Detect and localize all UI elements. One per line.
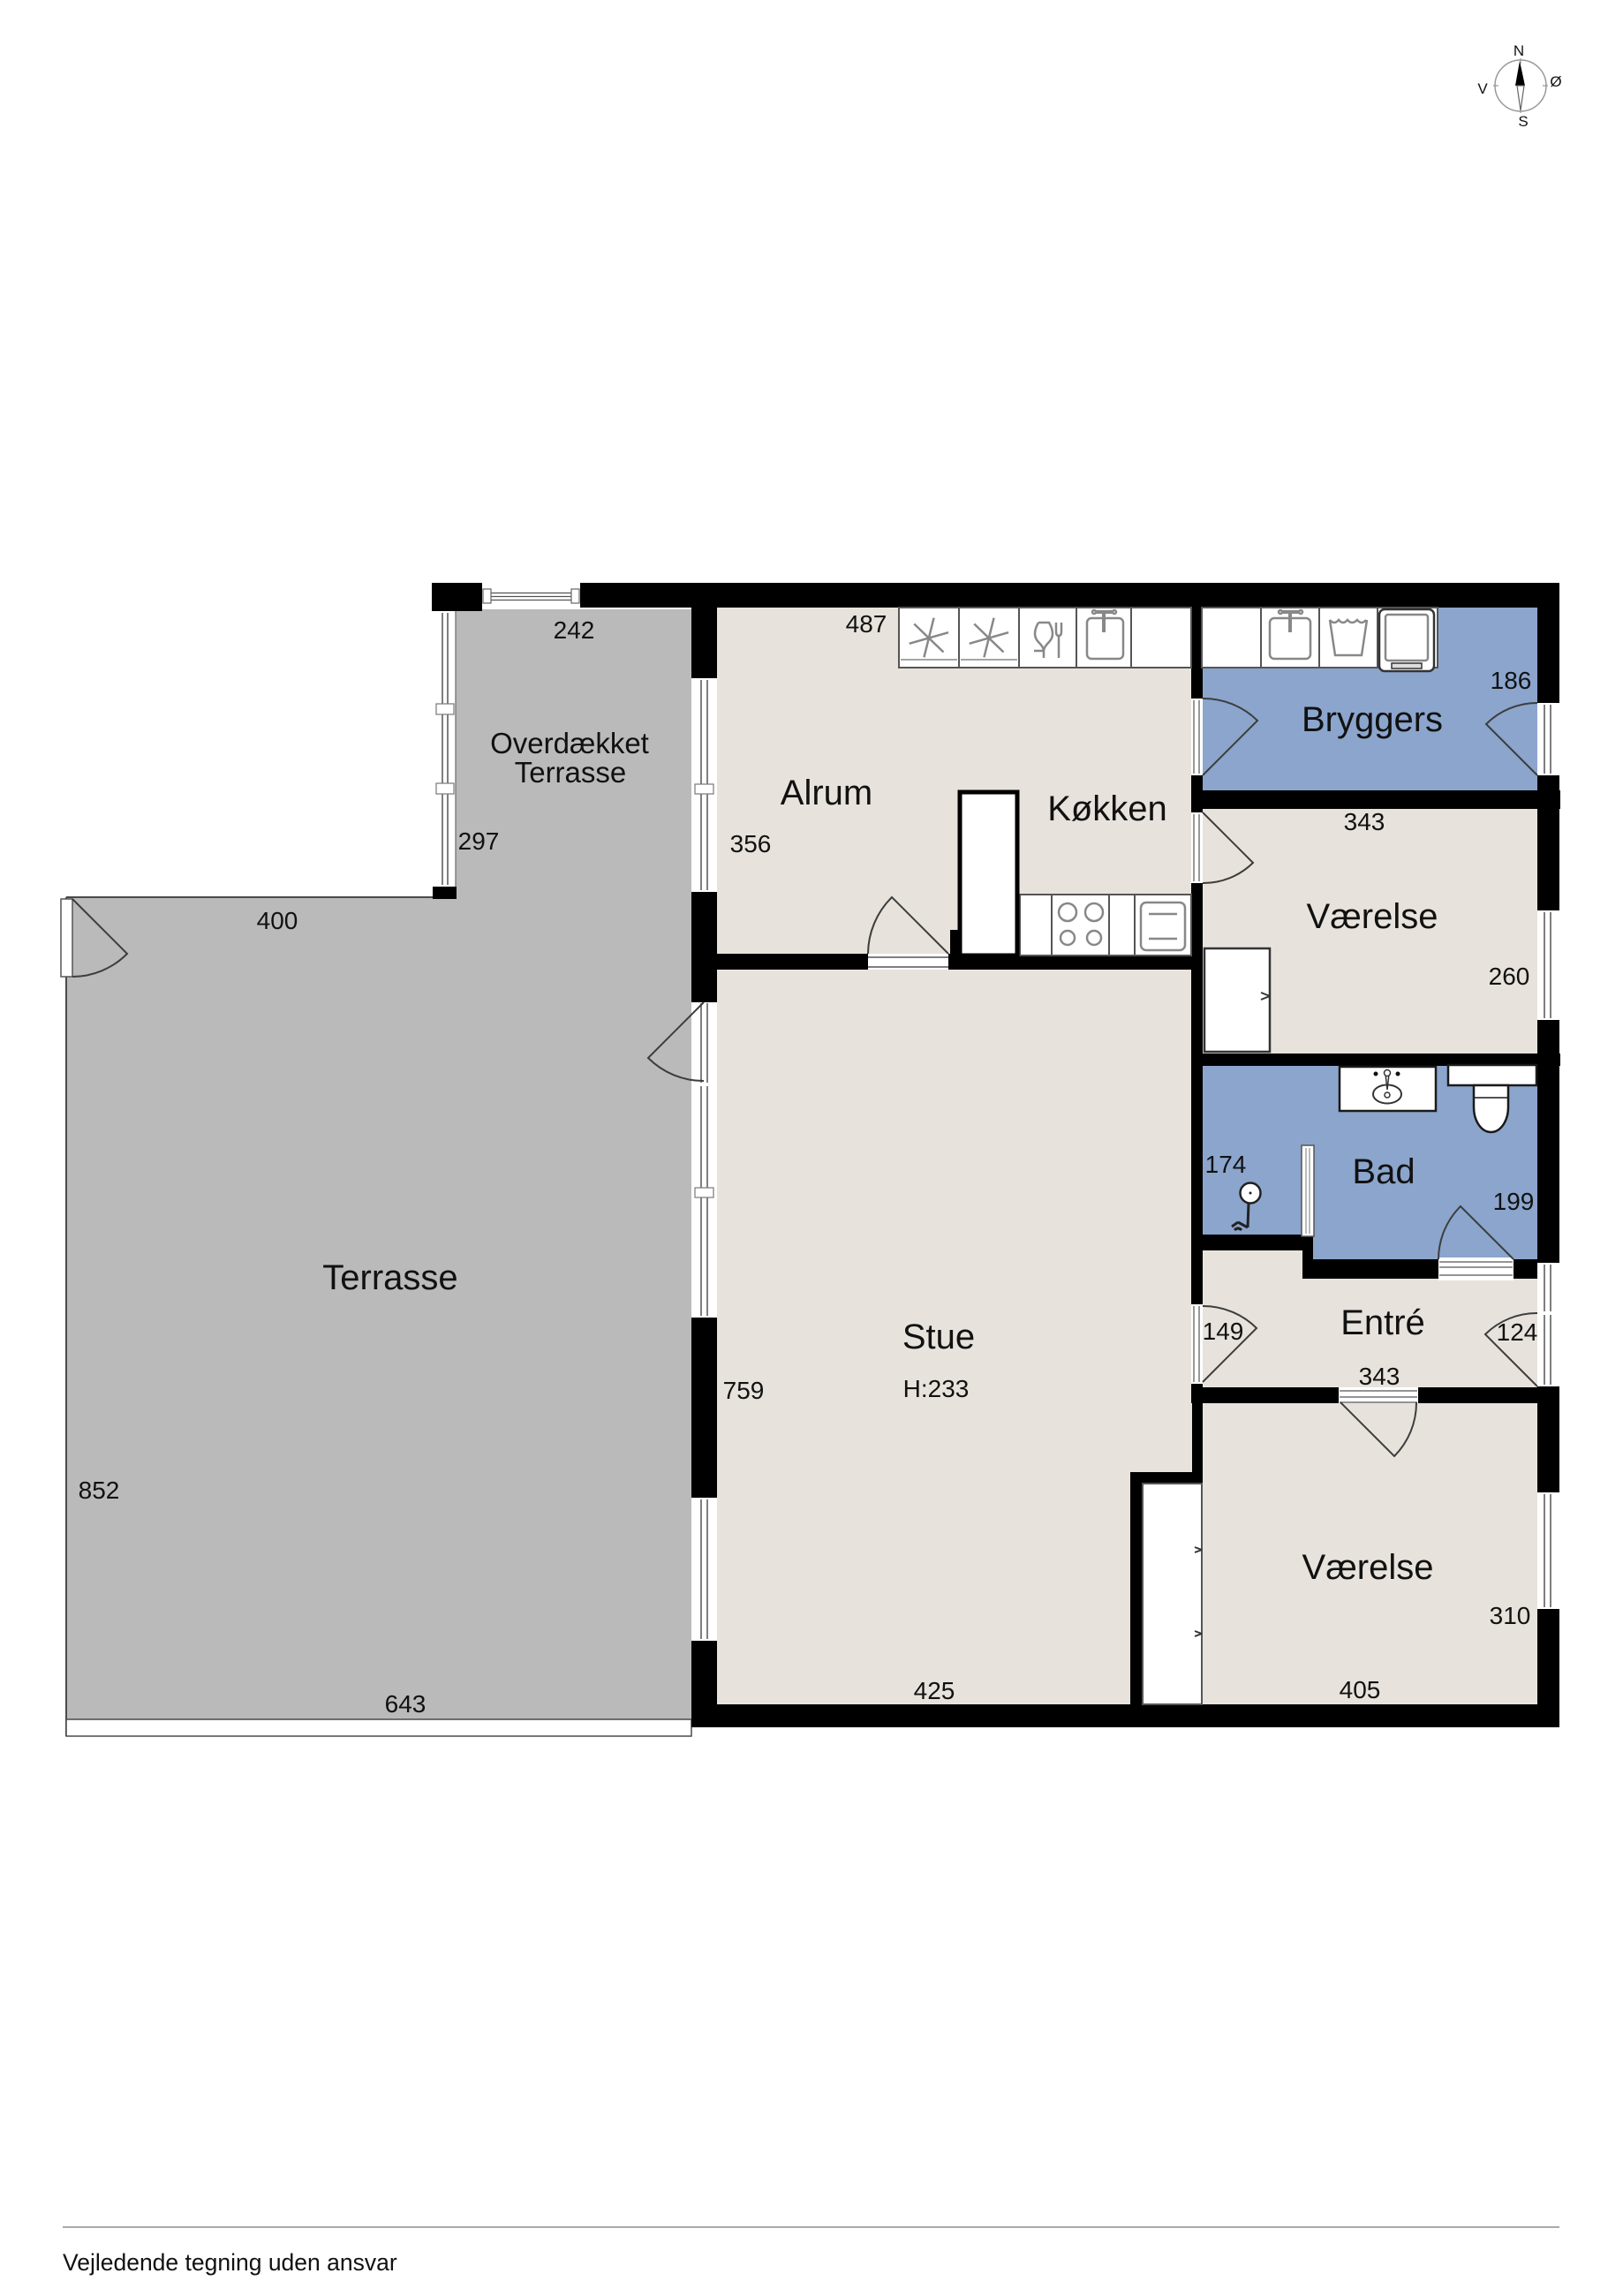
svg-text:199: 199	[1493, 1188, 1535, 1215]
svg-text:S: S	[1518, 113, 1528, 130]
svg-text:Vejledende tegning uden ansvar: Vejledende tegning uden ansvar	[63, 2249, 397, 2276]
svg-text:H:233: H:233	[903, 1375, 970, 1402]
svg-text:Bad: Bad	[1352, 1152, 1415, 1191]
svg-text:Alrum: Alrum	[781, 774, 872, 812]
svg-text:Bryggers: Bryggers	[1302, 700, 1443, 739]
svg-text:Entré: Entré	[1340, 1303, 1425, 1342]
svg-text:425: 425	[914, 1677, 955, 1704]
svg-text:N: N	[1514, 42, 1524, 59]
svg-text:Overdækket: Overdækket	[490, 727, 649, 759]
svg-text:405: 405	[1340, 1676, 1381, 1703]
svg-text:Værelse: Værelse	[1302, 1548, 1434, 1587]
svg-text:297: 297	[458, 827, 500, 855]
svg-text:149: 149	[1203, 1318, 1244, 1345]
svg-text:487: 487	[846, 610, 887, 638]
svg-text:759: 759	[723, 1377, 765, 1404]
svg-text:Stue: Stue	[902, 1318, 975, 1356]
svg-text:Ø: Ø	[1550, 73, 1561, 90]
svg-text:356: 356	[730, 830, 772, 857]
svg-text:343: 343	[1344, 808, 1385, 835]
svg-text:310: 310	[1490, 1602, 1531, 1629]
svg-text:124: 124	[1497, 1318, 1538, 1346]
svg-text:643: 643	[385, 1690, 427, 1718]
svg-text:852: 852	[79, 1477, 120, 1504]
svg-text:242: 242	[554, 616, 595, 644]
svg-text:Terrasse: Terrasse	[322, 1258, 457, 1297]
svg-text:186: 186	[1491, 667, 1532, 694]
svg-text:260: 260	[1489, 963, 1530, 990]
svg-text:Værelse: Værelse	[1307, 897, 1438, 936]
svg-text:400: 400	[257, 907, 298, 934]
svg-text:174: 174	[1205, 1151, 1247, 1178]
svg-text:V: V	[1477, 80, 1488, 97]
svg-text:343: 343	[1359, 1363, 1400, 1390]
svg-text:Terrasse: Terrasse	[515, 756, 627, 789]
svg-text:Køkken: Køkken	[1047, 789, 1167, 828]
